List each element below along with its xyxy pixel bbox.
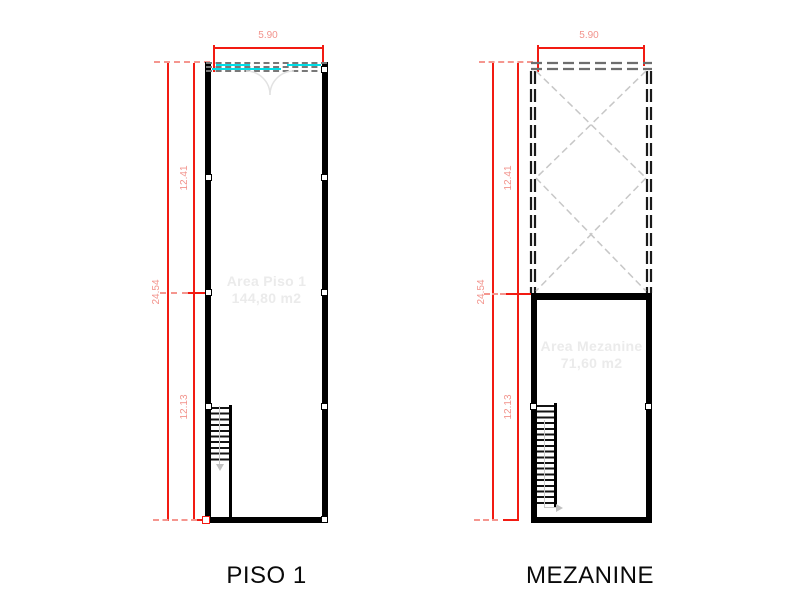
piso1-extension-tick-mid xyxy=(160,292,188,294)
mezanine-total-dimension-line xyxy=(492,63,494,521)
mezanine-extension-tick-bottom xyxy=(474,519,498,521)
piso1-stair-centerline xyxy=(219,406,220,464)
piso1-wall-joint xyxy=(321,403,328,410)
mezanine-bottom-wall xyxy=(531,517,652,523)
mezanine-stair-wall xyxy=(554,403,557,507)
stair-down-arrow-icon xyxy=(216,464,224,471)
mezanine-upper-dimension-label: 12.41 xyxy=(504,165,514,190)
mezanine-stair-treads xyxy=(537,405,554,506)
piso1-corner-marker xyxy=(202,516,210,524)
mezanine-extension-tick-mid xyxy=(484,293,506,295)
piso1-width-dimension-label: 5.90 xyxy=(258,31,277,41)
mezanine-lower-dimension-label: 12.13 xyxy=(504,394,514,419)
piso1-extension-tick-top xyxy=(154,61,210,63)
mezanine-width-dimension-line xyxy=(537,47,643,49)
piso1-area-label: Area Piso 1 144,80 m2 xyxy=(205,273,328,307)
piso1-wall-joint xyxy=(205,174,212,181)
mezanine-stair-centerline xyxy=(544,420,545,508)
mezanine-lower-dimension-line xyxy=(517,295,519,521)
mezanine-stair-arrow-line xyxy=(544,507,556,508)
piso1-wall-joint xyxy=(321,516,328,523)
piso1-plan-title: PISO 1 xyxy=(203,563,330,589)
door-swing-arc xyxy=(242,71,298,98)
piso1-wall-joint xyxy=(321,174,328,181)
mezanine-area-name: Area Mezanine xyxy=(531,338,652,355)
piso1-lower-dimension-line xyxy=(193,293,195,521)
piso1-upper-dimension-label: 12.41 xyxy=(180,165,190,190)
piso1-stair-treads xyxy=(211,407,229,464)
piso1-area-name: Area Piso 1 xyxy=(205,273,328,290)
mezanine-extension-red-bottom xyxy=(503,519,518,521)
mezanine-width-dimension-label: 5.90 xyxy=(579,31,598,41)
piso1-stair-wall xyxy=(229,405,232,523)
mezanine-plan-title: MEZANINE xyxy=(512,563,668,589)
stair-direction-arrow-icon xyxy=(556,504,563,512)
mezanine-upper-dimension-line xyxy=(517,63,519,295)
mezanine-wall-joint xyxy=(530,403,537,410)
piso1-area-value: 144,80 m2 xyxy=(205,290,328,307)
mezanine-area-value: 71,60 m2 xyxy=(531,355,652,372)
mezanine-extension-red-mid xyxy=(506,293,532,295)
mezanine-void-hatch xyxy=(530,62,652,293)
piso1-width-dimension-line xyxy=(213,47,323,49)
piso1-extension-tick-bottom xyxy=(153,519,197,521)
drawing-canvas: 5.90 24.54 12.41 12.13 xyxy=(0,0,809,604)
piso1-bottom-wall xyxy=(205,517,328,523)
mezanine-total-dimension-label: 24.54 xyxy=(477,279,487,304)
mezanine-area-label: Area Mezanine 71,60 m2 xyxy=(531,338,652,372)
piso1-wall-joint xyxy=(205,403,212,410)
mezanine-top-wall xyxy=(531,293,652,300)
piso1-upper-dimension-line xyxy=(193,63,195,293)
piso1-wall-joint xyxy=(321,66,328,73)
piso1-lower-dimension-label: 12.13 xyxy=(180,394,190,419)
mezanine-wall-joint xyxy=(645,403,652,410)
mezanine-extension-tick-top xyxy=(479,61,533,63)
